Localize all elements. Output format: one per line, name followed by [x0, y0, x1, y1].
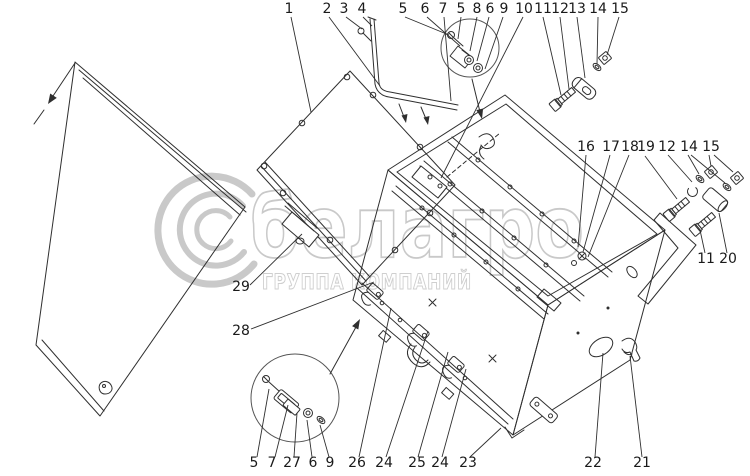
callout-label-24-36: 24 — [431, 455, 449, 471]
leader-line-23 — [470, 428, 501, 457]
leader-line-17 — [583, 155, 610, 252]
callout-label-21-39: 21 — [633, 455, 651, 471]
callout-label-15-16: 15 — [611, 1, 629, 17]
leader-line-13 — [577, 17, 585, 78]
leader-line-15 — [709, 155, 711, 166]
callout-label-5-28: 5 — [250, 455, 259, 471]
callout-label-3-2: 3 — [340, 1, 349, 17]
leader-line-6 — [427, 17, 460, 46]
leader-line-21 — [630, 356, 642, 457]
leader-line-1 — [291, 17, 311, 112]
callout-label-20-25: 20 — [719, 251, 737, 267]
callout-label-24-34: 24 — [375, 455, 393, 471]
callout-label-6-31: 6 — [309, 455, 318, 471]
callout-label-7-29: 7 — [268, 455, 277, 471]
leader-line-11 — [543, 17, 561, 95]
callout-label-23-37: 23 — [459, 455, 477, 471]
leader-line-12 — [560, 17, 569, 89]
leader-line-24 — [386, 331, 428, 457]
callout-label-4-3: 4 — [358, 1, 367, 17]
leader-line-5 — [405, 17, 449, 35]
leader-line-3 — [346, 17, 362, 29]
callout-label-27-30: 27 — [283, 455, 301, 471]
leader-line-15 — [607, 17, 619, 55]
leader-line-12 — [668, 155, 692, 182]
callout-label-16-17: 16 — [577, 139, 595, 155]
leader-line-8 — [470, 17, 477, 51]
callout-label-6-9: 6 — [486, 1, 495, 17]
callout-label-28-27: 28 — [232, 323, 250, 339]
callout-label-1-0: 1 — [285, 1, 294, 17]
leader-line-14 — [688, 155, 699, 174]
callout-label-26-33: 26 — [348, 455, 366, 471]
callout-label-14-15: 14 — [589, 1, 607, 17]
callout-label-5-7: 5 — [457, 1, 466, 17]
callout-label-9-10: 9 — [500, 1, 509, 17]
leader-line-5 — [458, 17, 461, 39]
callout-label-19-20: 19 — [637, 139, 655, 155]
callout-label-9-32: 9 — [326, 455, 335, 471]
callout-label-22-38: 22 — [584, 455, 602, 471]
callout-label-6-5: 6 — [421, 1, 430, 17]
leader-line-14 — [597, 17, 598, 64]
detail-bubble-bottom — [251, 319, 360, 442]
callout-label-8-8: 8 — [473, 1, 482, 17]
leader-line-11 — [700, 230, 705, 253]
leader-line-27 — [294, 413, 297, 457]
callout-label-13-14: 13 — [568, 1, 586, 17]
leader-line-9 — [320, 425, 329, 457]
leader-line-7 — [275, 405, 288, 457]
callout-label-17-18: 17 — [602, 139, 620, 155]
callout-label-12-13: 12 — [551, 1, 569, 17]
leader-line-19 — [645, 156, 677, 199]
callout-label-11-12: 11 — [534, 1, 552, 17]
parts-diagram-page: белагро ГРУППА КОМПАНИЙ — [0, 0, 750, 476]
leader-line-20 — [719, 213, 727, 253]
leader-line-26 — [359, 308, 391, 457]
callout-label-11-24: 11 — [697, 251, 715, 267]
callout-label-5-4: 5 — [399, 1, 408, 17]
parts-diagram: белагро ГРУППА КОМПАНИЙ — [0, 0, 750, 476]
leader-line-15 — [714, 155, 733, 172]
callout-label-29-26: 29 — [232, 279, 250, 295]
leader-line-6 — [477, 17, 489, 61]
callout-label-25-35: 25 — [408, 455, 426, 471]
callout-label-15-23: 15 — [702, 139, 720, 155]
callout-label-7-6: 7 — [439, 1, 448, 17]
callout-label-14-22: 14 — [680, 139, 698, 155]
callout-label-12-21: 12 — [658, 139, 676, 155]
callout-label-10-11: 10 — [515, 1, 533, 17]
callout-label-2-1: 2 — [323, 1, 332, 17]
